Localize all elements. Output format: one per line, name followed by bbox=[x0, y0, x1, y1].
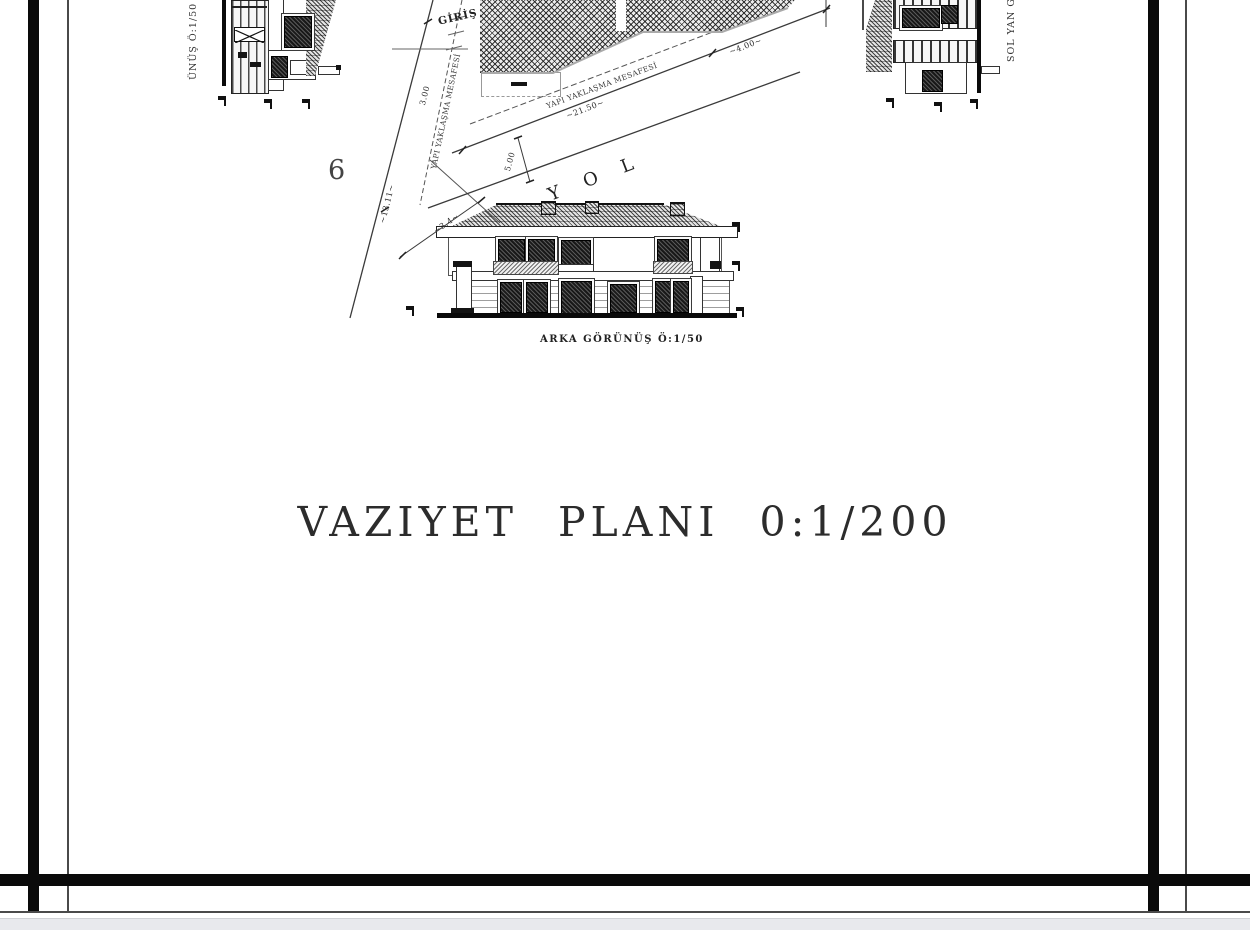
ground-hook bbox=[738, 261, 740, 271]
sheet-title: VAZIYET PLANI 0:1/200 bbox=[297, 498, 952, 546]
left-elevation-arm-tip bbox=[336, 65, 341, 70]
chimney bbox=[670, 202, 685, 216]
window-hatch bbox=[250, 62, 261, 67]
right-elevation-edge-line bbox=[862, 0, 864, 30]
right-elevation-arm bbox=[981, 66, 1000, 74]
vent-x-icon bbox=[235, 30, 264, 43]
dim-setback-width: 3.00 bbox=[418, 85, 432, 106]
window-hatch bbox=[922, 70, 943, 92]
right-elevation-ground-line bbox=[977, 0, 981, 93]
rear-elevation-title: ARKA GÖRÜNÜŞ Ö:1/50 bbox=[540, 334, 704, 345]
window-hatch bbox=[655, 281, 671, 313]
balcony-parapet bbox=[493, 261, 559, 275]
window-hatch bbox=[941, 5, 958, 24]
site-plan-lines bbox=[0, 0, 1250, 930]
chimney bbox=[585, 201, 599, 214]
window-hatch bbox=[238, 52, 247, 58]
balcony-parapet bbox=[653, 261, 693, 274]
right-elevation-roof-band bbox=[866, 0, 893, 72]
window-hatch bbox=[271, 56, 288, 78]
window-hatch bbox=[610, 284, 637, 313]
column-capital bbox=[453, 261, 472, 267]
roof-plan-hatch bbox=[478, 0, 795, 76]
ground-hook bbox=[742, 307, 744, 317]
site-plan-sheet: ÜNÜŞ Ö:1/50 GİRİŞ SOL YAN G ARKA bbox=[0, 0, 1250, 930]
frame-right-thin bbox=[1185, 0, 1187, 913]
left-elevation-roof-line bbox=[231, 6, 267, 8]
ground-hook bbox=[738, 222, 740, 232]
dim-road-width: 5.00 bbox=[503, 151, 517, 172]
rear-elevation-eaves bbox=[436, 226, 738, 238]
right-elevation-floor-band bbox=[893, 28, 977, 41]
road-label: Y O L bbox=[545, 150, 646, 205]
frame-left-thin bbox=[67, 0, 69, 913]
right-elevation-title: SOL YAN G bbox=[1006, 0, 1017, 62]
window-hatch bbox=[284, 16, 312, 48]
left-elevation-railing bbox=[231, 0, 269, 94]
viewer-bottom-strip bbox=[0, 918, 1250, 930]
right-porch-column bbox=[690, 276, 703, 316]
ground-hook bbox=[892, 98, 894, 108]
ground-hook bbox=[412, 306, 414, 316]
dim-left-boundary: ~13.11~ bbox=[378, 183, 396, 224]
entrance-label: GİRİŞ bbox=[437, 7, 479, 28]
left-elevation-title: ÜNÜŞ Ö:1/50 bbox=[188, 3, 199, 80]
window-hatch bbox=[673, 281, 689, 313]
setback-label-left: YAPI YAKLAŞMA MESAFESİ bbox=[429, 53, 462, 170]
window-hatch bbox=[561, 281, 592, 314]
rear-elevation-ground-line bbox=[437, 313, 737, 318]
ground-hook bbox=[976, 99, 978, 109]
window-hatch bbox=[526, 282, 548, 313]
window-hatch bbox=[902, 8, 940, 28]
left-elevation-ground-line bbox=[222, 0, 226, 86]
plot-number: 6 bbox=[328, 155, 345, 186]
ground-hook bbox=[308, 99, 310, 109]
terrace-door-mark bbox=[511, 82, 527, 86]
frame-bottom-thin bbox=[0, 911, 1250, 913]
ground-hook bbox=[270, 99, 272, 109]
rear-elevation-ridge bbox=[496, 203, 664, 205]
ground-hook bbox=[224, 96, 226, 106]
window-sill bbox=[558, 264, 594, 272]
frame-bottom-thick bbox=[0, 874, 1250, 886]
porch-rail-mark bbox=[710, 261, 721, 269]
ground-hook bbox=[940, 102, 942, 112]
dim-frontage-right: ~4.00~ bbox=[728, 36, 763, 57]
frame-right-thick bbox=[1148, 0, 1159, 911]
left-porch-column bbox=[456, 264, 472, 314]
window-hatch bbox=[500, 282, 522, 313]
frame-left-thick bbox=[28, 0, 39, 911]
roof-plan-valley-gap bbox=[616, 0, 626, 31]
roof-vent-symbol bbox=[234, 27, 265, 42]
